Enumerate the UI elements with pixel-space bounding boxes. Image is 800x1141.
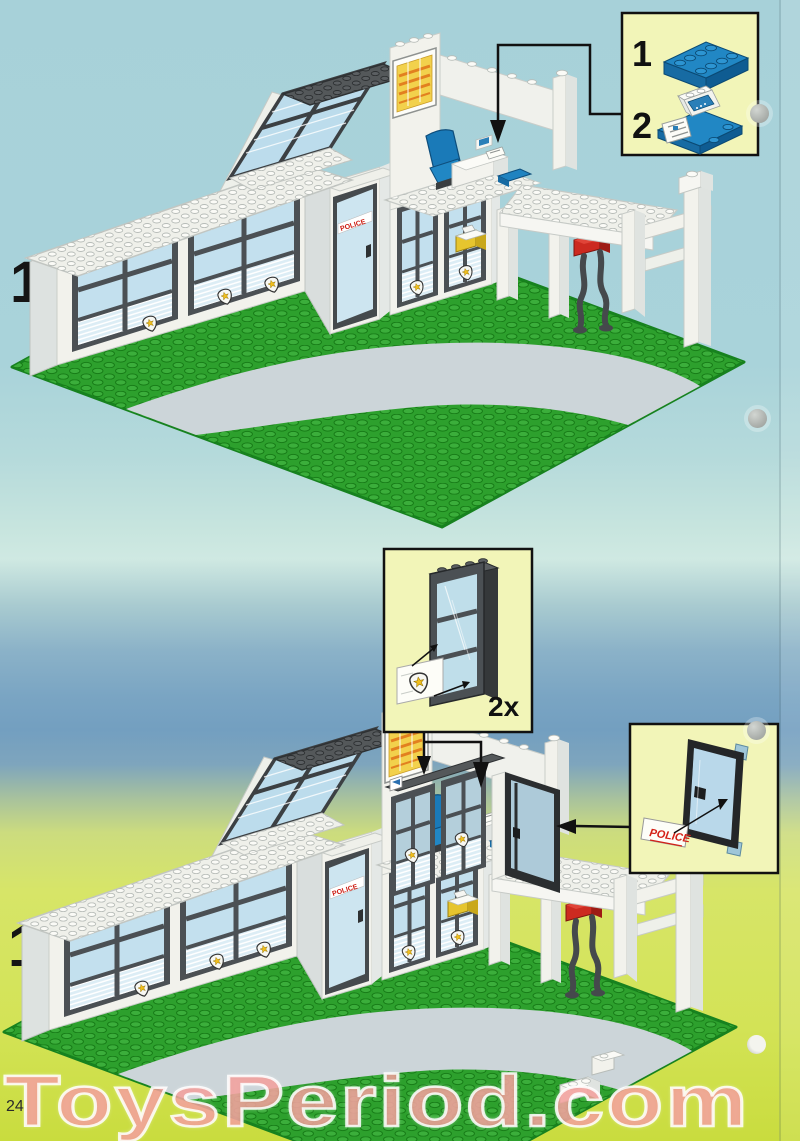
quantity-label: 2x: [488, 691, 520, 722]
glass-door: POLICE: [333, 183, 377, 330]
punch-hole: [747, 1035, 766, 1054]
watermark: ToysPeriod.com: [4, 1066, 750, 1138]
page-crease: [779, 0, 781, 1141]
window-bay-upper: [391, 783, 435, 897]
carport-roof: [500, 185, 677, 250]
map-board: [393, 48, 436, 118]
window-bay-upper: [441, 767, 486, 881]
map-wall: [390, 33, 440, 210]
page-edge: [781, 0, 800, 1141]
punch-hole: [747, 721, 766, 740]
part-1-index: 1: [632, 33, 652, 74]
black-door-frame: [492, 772, 560, 893]
instruction-graphics: POLICE: [0, 0, 800, 1141]
door-callout: POLICE: [556, 724, 778, 873]
instruction-page: POLICE: [0, 0, 800, 1141]
punch-hole: [750, 104, 769, 123]
back-wall: [440, 55, 577, 170]
punch-hole: [748, 409, 767, 428]
part-2-index: 2: [632, 105, 652, 146]
